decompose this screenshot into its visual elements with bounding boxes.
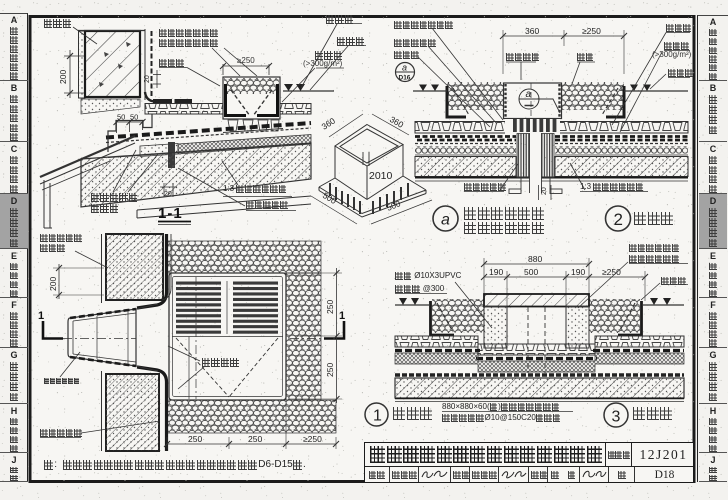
svg-text:3: 3 xyxy=(612,409,621,426)
svg-text:500: 500 xyxy=(524,267,538,277)
svg-text:200: 200 xyxy=(48,277,58,291)
svg-text:250: 250 xyxy=(188,434,202,444)
svg-text:1-1: 1-1 xyxy=(158,205,183,222)
svg-text:1: 1 xyxy=(373,408,382,425)
svg-text:1: 1 xyxy=(339,310,345,322)
svg-text:2: 2 xyxy=(614,210,623,229)
svg-text:≥250: ≥250 xyxy=(602,267,621,277)
svg-text:50: 50 xyxy=(117,113,125,122)
svg-text:≥250: ≥250 xyxy=(303,434,322,444)
svg-text:200: 200 xyxy=(58,70,68,84)
svg-text:a: a xyxy=(441,212,450,229)
svg-text:a: a xyxy=(526,89,532,100)
svg-text:190: 190 xyxy=(489,267,503,277)
svg-text:a: a xyxy=(402,63,407,73)
svg-text:2010: 2010 xyxy=(369,170,393,182)
svg-text:≥250: ≥250 xyxy=(582,26,601,36)
svg-text:250: 250 xyxy=(248,434,262,444)
svg-text:360: 360 xyxy=(525,26,539,36)
svg-text:1: 1 xyxy=(38,310,44,322)
svg-text:D16: D16 xyxy=(399,75,411,82)
svg-text:20: 20 xyxy=(144,75,151,83)
svg-text:20: 20 xyxy=(164,191,172,198)
svg-text:880: 880 xyxy=(528,254,542,264)
svg-text:20: 20 xyxy=(541,187,548,195)
svg-text:190: 190 xyxy=(571,267,585,277)
svg-text:250: 250 xyxy=(325,300,335,314)
svg-text:250: 250 xyxy=(325,363,335,377)
svg-text:50: 50 xyxy=(130,113,138,122)
